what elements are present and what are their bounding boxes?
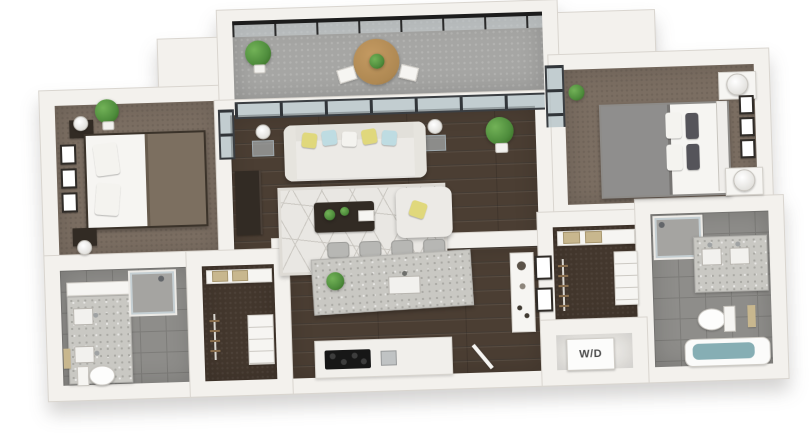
floor-plan: W/D bbox=[22, 0, 786, 418]
island-sink bbox=[388, 276, 421, 295]
master-toilet-tank bbox=[723, 306, 736, 332]
master-wall-art bbox=[739, 95, 755, 114]
master-bed bbox=[599, 101, 732, 199]
console-decor bbox=[524, 313, 529, 318]
clothes-hanger bbox=[210, 340, 220, 342]
bedroom-2-wall-art bbox=[61, 168, 78, 188]
bathroom-2-shower bbox=[130, 271, 175, 314]
master-towel bbox=[747, 305, 756, 327]
kitchen-appliance bbox=[381, 350, 397, 365]
sofa-pillow-yellow bbox=[301, 132, 318, 149]
living-side-table bbox=[252, 140, 274, 157]
bathroom-2-towel bbox=[63, 349, 71, 369]
sofa-pillow-blue bbox=[381, 130, 397, 146]
clothes-hanger bbox=[558, 265, 568, 267]
closet-basket bbox=[563, 231, 580, 244]
clothes-hanger bbox=[210, 330, 220, 332]
bedroom-2-bed bbox=[84, 130, 209, 230]
clothes-hanger bbox=[559, 285, 569, 287]
master-bed-accent-pillow bbox=[685, 113, 699, 139]
wall-block-top-left bbox=[158, 38, 222, 98]
bedroom-2-wall-art bbox=[61, 192, 78, 212]
master-sink bbox=[729, 247, 750, 265]
bed-pillow bbox=[94, 182, 120, 216]
sofa bbox=[283, 121, 427, 181]
console-decor bbox=[517, 305, 522, 310]
burner bbox=[330, 353, 336, 359]
sofa-pillow-yellow bbox=[361, 128, 378, 145]
bed-pillow bbox=[92, 142, 120, 177]
clothes-hanger bbox=[209, 320, 219, 322]
bedroom-2-plant-pot bbox=[102, 121, 114, 130]
master-bed-pillow bbox=[665, 112, 682, 138]
washer-dryer-unit: W/D bbox=[566, 337, 615, 370]
closet-basket bbox=[212, 271, 228, 282]
master-wall-art bbox=[740, 139, 756, 158]
burner bbox=[341, 359, 347, 365]
master-sink bbox=[701, 248, 722, 266]
coffee-table-tray bbox=[358, 210, 374, 221]
closet-2-dresser bbox=[247, 314, 275, 365]
bathroom-2-sink bbox=[74, 346, 95, 364]
bedroom-2-wall-art bbox=[60, 144, 77, 164]
sofa-pillow-blue bbox=[321, 129, 338, 146]
balcony-plant-pot bbox=[253, 64, 265, 73]
washer-dryer-label: W/D bbox=[579, 348, 602, 361]
clothes-hanger bbox=[558, 275, 568, 277]
tv-console bbox=[235, 170, 263, 235]
entry-console-table bbox=[509, 252, 536, 333]
sofa-arm bbox=[413, 121, 427, 177]
clothes-hanger bbox=[559, 305, 569, 307]
bedroom-2-window bbox=[218, 109, 236, 159]
entry-wall-art bbox=[535, 255, 553, 280]
cooktop bbox=[324, 349, 371, 369]
master-bed-accent-pillow bbox=[686, 144, 700, 170]
burner bbox=[352, 353, 358, 359]
sofa-pillow-white bbox=[342, 131, 358, 147]
bar-stool bbox=[327, 242, 349, 259]
master-bed-pillow bbox=[666, 144, 683, 170]
burner bbox=[361, 358, 367, 364]
console-decor bbox=[519, 283, 525, 289]
living-corner-plant-pot bbox=[495, 143, 508, 153]
closet-basket bbox=[585, 231, 602, 244]
master-bedroom-window bbox=[545, 65, 566, 128]
bathroom-2-sink bbox=[73, 308, 94, 326]
bed-duvet bbox=[145, 132, 207, 226]
clothes-hanger bbox=[559, 295, 569, 297]
entry-wall-art bbox=[536, 287, 554, 312]
master-closet-dresser bbox=[613, 251, 639, 306]
wall-block-top-right bbox=[558, 10, 655, 57]
living-side-table bbox=[424, 135, 446, 152]
sofa-arm bbox=[283, 125, 297, 181]
console-decor bbox=[517, 261, 526, 270]
bathroom-2-toilet-tank bbox=[77, 366, 90, 386]
clothes-hanger bbox=[210, 350, 220, 352]
bathtub-water bbox=[692, 342, 754, 360]
master-bed-duvet bbox=[601, 105, 673, 197]
master-wall-art bbox=[739, 117, 755, 136]
closet-basket bbox=[232, 270, 248, 281]
